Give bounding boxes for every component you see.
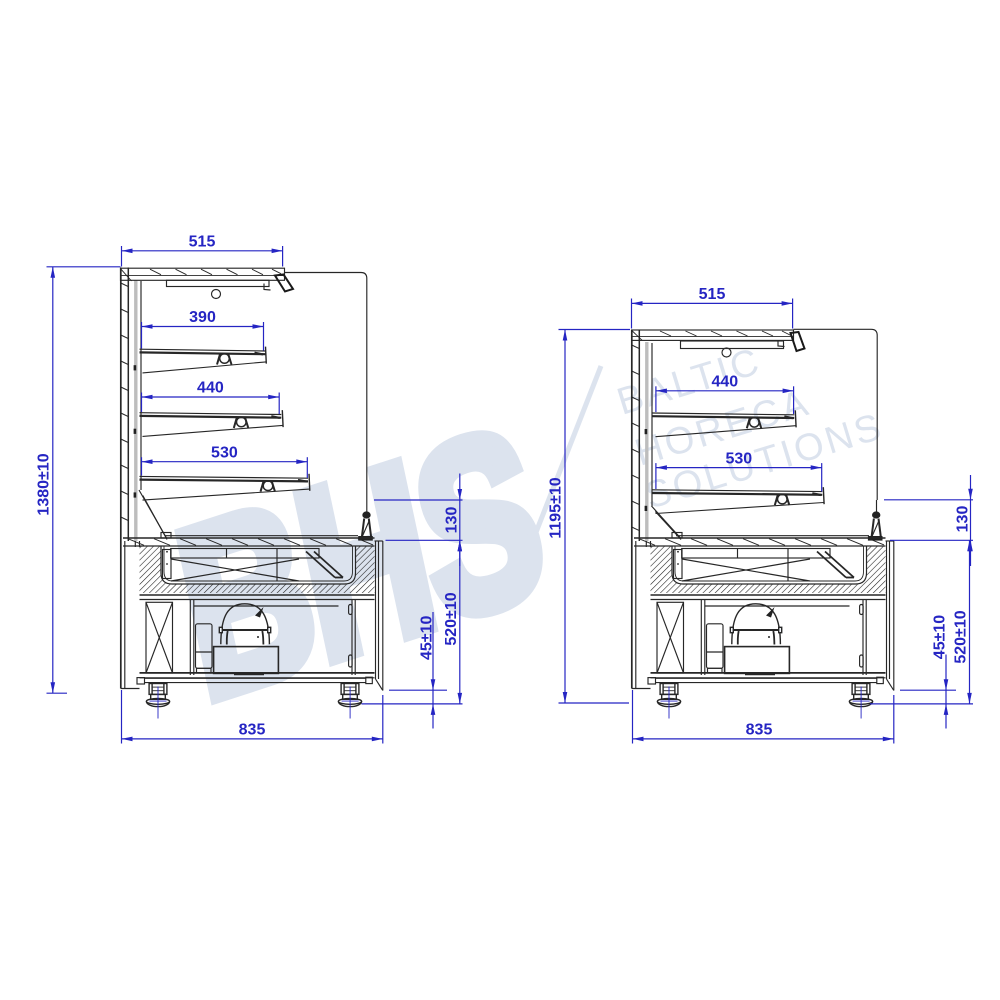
svg-text:390: 390 (189, 309, 216, 326)
svg-text:520±10: 520±10 (443, 592, 460, 645)
svg-text:1195±10: 1195±10 (547, 477, 564, 538)
svg-text:1380±10: 1380±10 (35, 453, 52, 515)
svg-text:45±10: 45±10 (932, 615, 949, 659)
svg-text:520±10: 520±10 (953, 610, 970, 663)
svg-text:130: 130 (954, 506, 971, 533)
svg-text:515: 515 (189, 234, 216, 251)
svg-text:835: 835 (239, 722, 266, 739)
svg-text:515: 515 (699, 286, 726, 303)
svg-text:530: 530 (725, 450, 752, 467)
svg-text:835: 835 (746, 722, 773, 739)
svg-text:530: 530 (211, 444, 238, 461)
svg-text:130: 130 (444, 507, 461, 534)
svg-text:45±10: 45±10 (419, 616, 436, 660)
svg-text:440: 440 (197, 380, 224, 397)
svg-text:440: 440 (711, 374, 738, 391)
